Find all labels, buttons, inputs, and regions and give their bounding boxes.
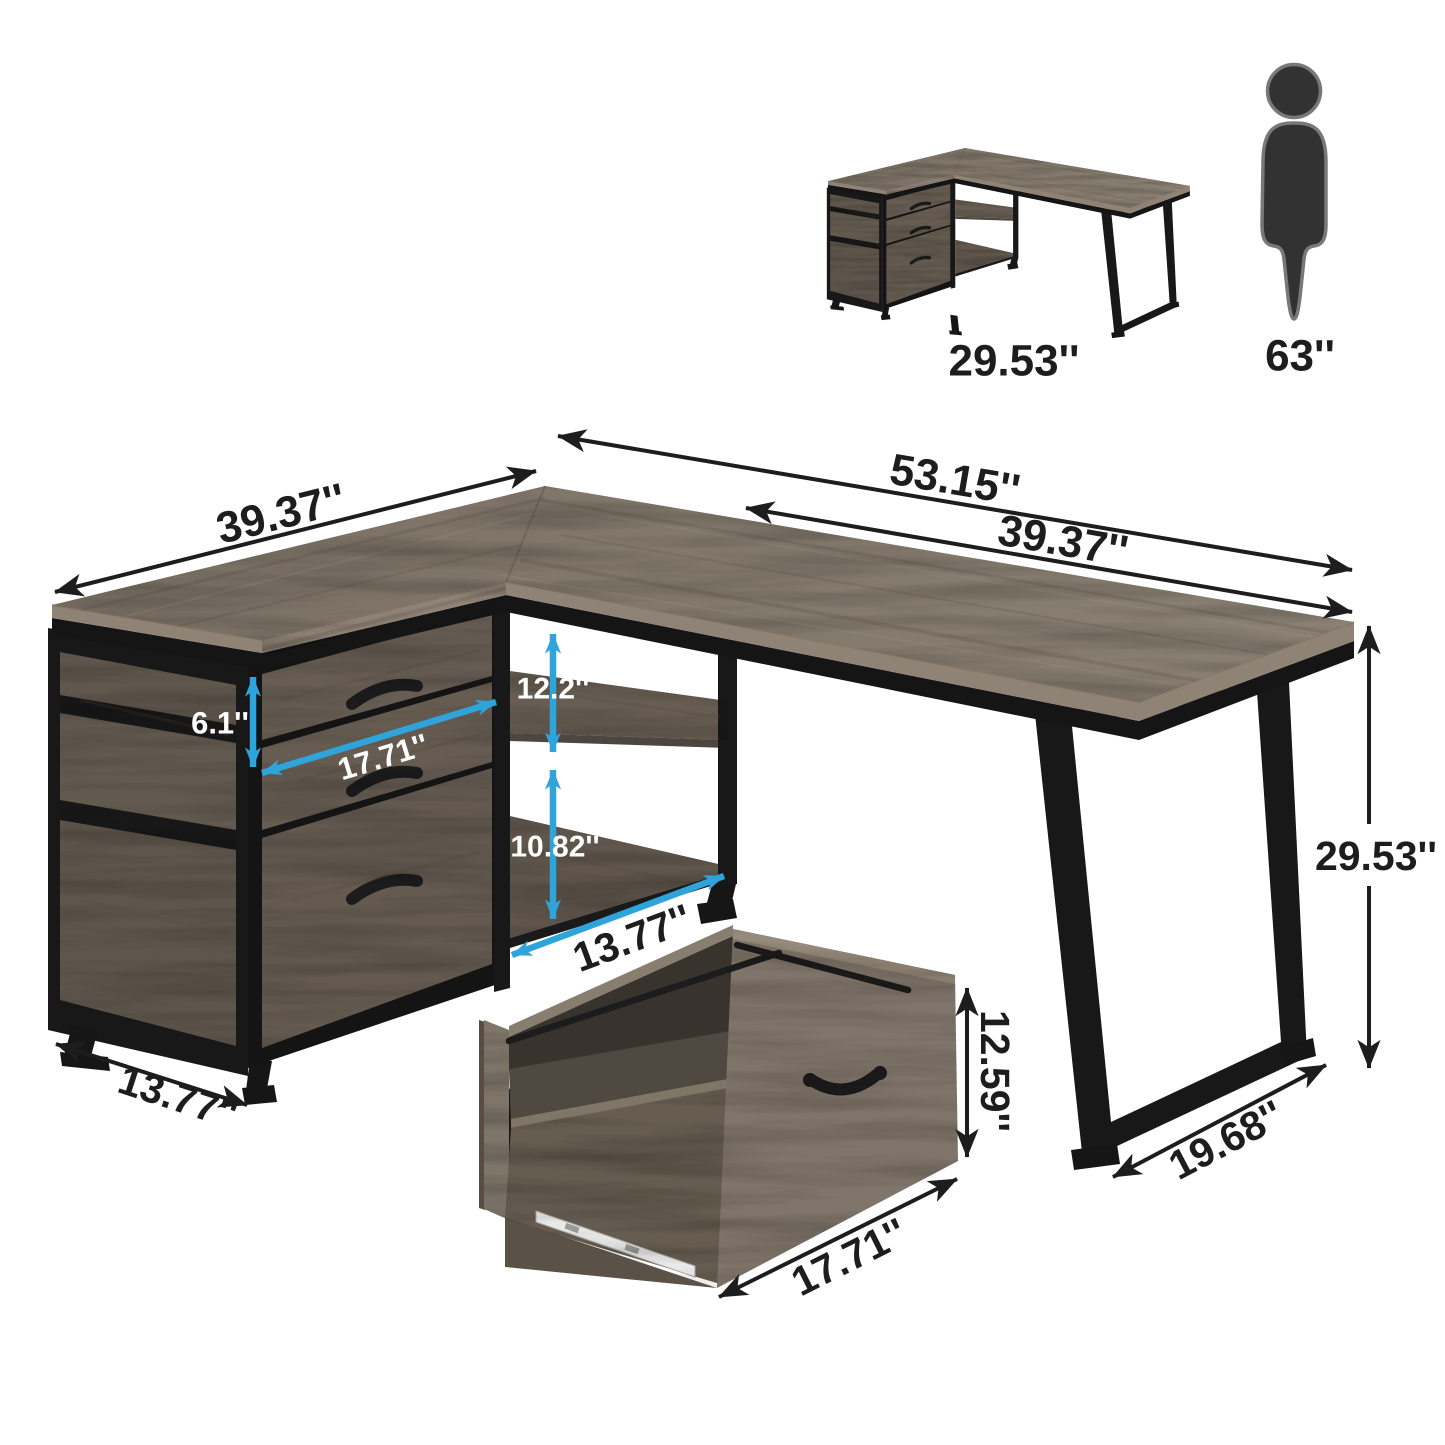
svg-text:63'': 63'' (1265, 332, 1335, 381)
svg-text:29.53'': 29.53'' (1315, 833, 1437, 879)
svg-text:6.1'': 6.1'' (191, 706, 249, 741)
svg-text:10.82'': 10.82'' (510, 831, 599, 864)
svg-text:29.53'': 29.53'' (948, 337, 1079, 386)
svg-text:12.2'': 12.2'' (517, 673, 590, 706)
svg-text:12.59'': 12.59'' (972, 1010, 1018, 1132)
